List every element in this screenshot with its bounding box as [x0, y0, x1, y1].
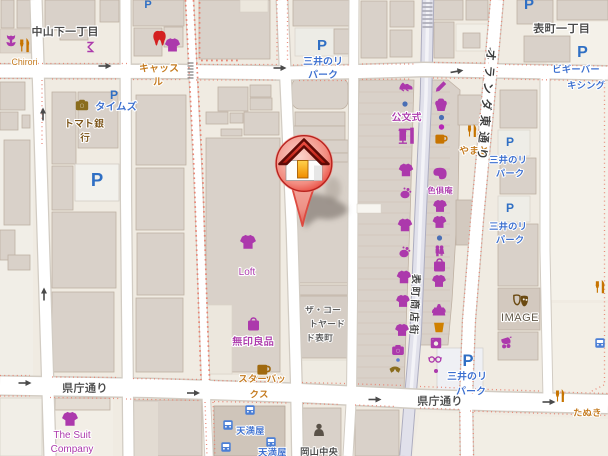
svg-text:P: P: [91, 169, 103, 190]
svg-text:P: P: [144, 0, 151, 11]
svg-text:P: P: [577, 44, 588, 61]
svg-text:P: P: [110, 88, 118, 102]
svg-text:Company: Company: [51, 444, 94, 455]
svg-text:P: P: [524, 0, 534, 13]
svg-text:P: P: [506, 135, 514, 149]
svg-text:IMAGE: IMAGE: [501, 312, 539, 324]
svg-text:Loft: Loft: [239, 267, 256, 278]
svg-text:P: P: [506, 201, 514, 215]
svg-text:Chirori: Chirori: [12, 57, 38, 67]
svg-text:P: P: [317, 37, 327, 54]
svg-text:P: P: [462, 352, 473, 370]
svg-text:The Suit: The Suit: [53, 430, 90, 441]
